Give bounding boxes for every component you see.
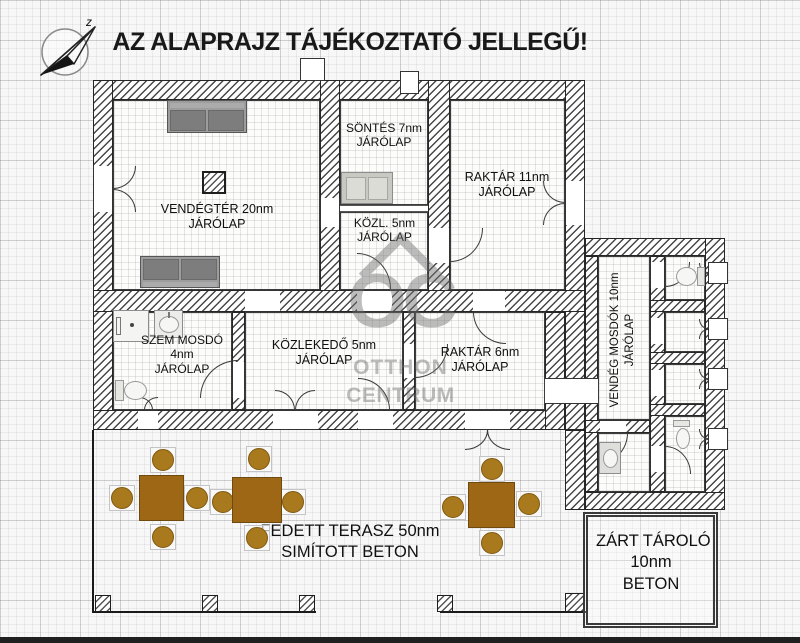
wall-annex-top [585, 238, 725, 256]
floor-plan: AZ ALAPRAJZ TÁJÉKOZTATÓ JELLEGŰ! z FEDET… [0, 0, 800, 643]
door-opening [358, 410, 393, 430]
compass-letter: z [85, 15, 92, 29]
door-opening [650, 370, 665, 396]
door-opening [465, 410, 510, 430]
door-arc [487, 430, 510, 450]
sofa [140, 256, 220, 288]
table [468, 482, 515, 528]
pillar-stove [202, 171, 226, 194]
toilet-icon [115, 380, 124, 401]
toilet-icon [673, 420, 690, 427]
door-opening [138, 410, 158, 430]
door-opening [93, 166, 113, 212]
scan-edge [0, 637, 800, 643]
wall-stall-divider [650, 300, 705, 312]
label-kozlekedo: KÖZLEKEDŐ 5nm JÁRÓLAP [248, 338, 400, 368]
terrace-pillar [437, 595, 453, 612]
door-opening [403, 344, 415, 378]
window-icon [708, 262, 728, 284]
sink-icon [599, 442, 621, 474]
wall-stall-divider [650, 404, 705, 416]
chair [518, 493, 540, 515]
label-sontes: SÖNTÉS 7nm JÁRÓLAP [334, 121, 434, 150]
door-opening [273, 410, 318, 430]
door-opening [650, 446, 665, 472]
terrace-pillar [565, 593, 585, 612]
chair [481, 458, 503, 480]
wall-sontes-kozl [340, 205, 428, 212]
terrace-pillar [95, 595, 111, 612]
door-arc [465, 430, 488, 450]
terrace-pillar [299, 595, 315, 612]
table [232, 477, 282, 523]
toilet-bowl-icon [124, 381, 147, 400]
page-title: AZ ALAPRAJZ TÁJÉKOZTATÓ JELLEGŰ! [95, 28, 605, 57]
terrace-pillar [202, 595, 218, 612]
label-vendeg-mosdok: VENDÉG MOSDÓK 10nm JÁRÓLAP [608, 250, 640, 430]
chair [481, 532, 503, 554]
window-icon [708, 368, 728, 390]
window-icon [708, 318, 728, 340]
chair [212, 491, 234, 513]
label-szem-mosdo: SZEM MOSDÓ 4nm JÁRÓLAP [122, 333, 242, 376]
chair [186, 487, 208, 509]
wall-annex-left [585, 256, 598, 492]
label-raktar11: RAKTÁR 11nm JÁRÓLAP [448, 170, 566, 200]
wall-stall-divider [650, 352, 705, 364]
toilet-bowl-icon [676, 267, 697, 286]
chair [282, 491, 304, 513]
room-stall-2 [665, 312, 705, 352]
wall-kozl-right [428, 80, 450, 312]
chimney-box [300, 58, 325, 81]
door-opening [473, 290, 505, 312]
wall-vendegter-right [320, 80, 340, 312]
chair [152, 449, 174, 471]
label-kozl: KÖZL. 5nm JÁRÓLAP [337, 216, 432, 245]
chimney-box [400, 71, 419, 94]
wall-annex-left-lower [565, 430, 585, 510]
label-raktar6: RAKTÁR 6nm JÁRÓLAP [416, 345, 544, 375]
table [139, 475, 184, 521]
toilet-icon [697, 267, 705, 286]
wall-bottom [93, 410, 585, 430]
door-opening [565, 181, 585, 225]
toilet-bowl-icon [676, 428, 690, 449]
bar-counter [341, 172, 393, 204]
window-icon [708, 428, 728, 450]
door-opening [650, 318, 665, 344]
wall-annex-bottom [585, 492, 725, 510]
door-opening [245, 290, 280, 312]
wall-raktar6-right [545, 312, 565, 430]
chair [248, 448, 270, 470]
chair [111, 487, 133, 509]
zart-tarolo-label: ZÁRT TÁROLÓ 10nm BETON [596, 531, 706, 595]
wall-middle-band [93, 290, 585, 312]
label-vendegter: VENDÉGTÉR 20nm JÁRÓLAP [117, 202, 317, 232]
door-opening [545, 378, 598, 404]
wall-left [93, 80, 113, 430]
chair [152, 526, 174, 548]
door-opening [357, 290, 392, 312]
door-opening [650, 262, 665, 288]
terrace-edge-left [92, 430, 94, 613]
chair [442, 496, 464, 518]
chair [246, 527, 268, 549]
sofa [167, 100, 247, 133]
